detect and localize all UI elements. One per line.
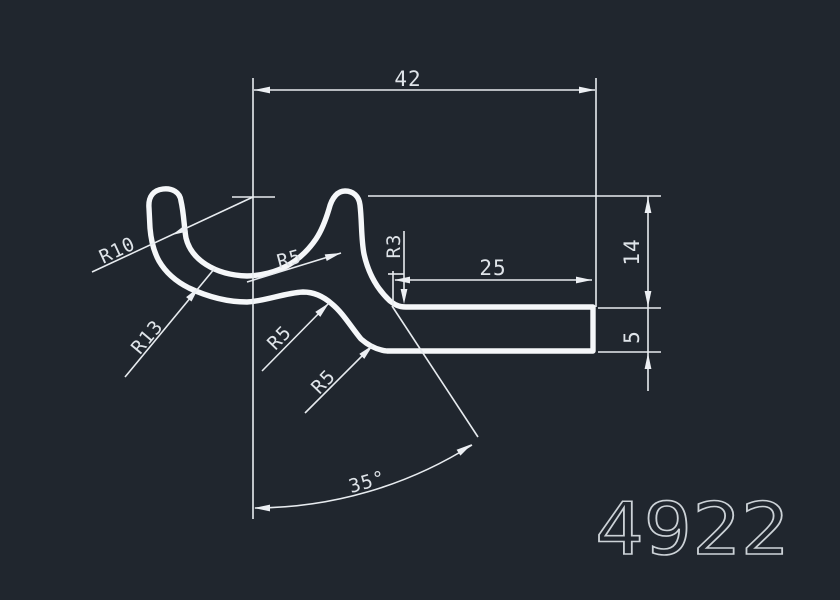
dimension-arrows (172, 87, 651, 512)
arrow-25-left (394, 277, 410, 284)
arrow-angle-left (254, 505, 270, 512)
dimension-lines (92, 78, 661, 519)
arrow-42-left (254, 87, 270, 94)
dim-label-top-width: 42 (394, 67, 421, 91)
r13-leader (125, 268, 215, 377)
arrow-14-bottom (645, 291, 652, 307)
radius-label-s-upper: R5 (263, 321, 296, 354)
arrow-r3 (401, 289, 408, 304)
radius-label-fillet: R3 (383, 234, 405, 259)
angle-ray (392, 306, 478, 437)
dim-label-bar-length: 25 (479, 256, 506, 280)
arrow-25-right (576, 277, 592, 284)
radius-label-upper-left: R10 (96, 233, 139, 269)
arrow-42-right (579, 87, 595, 94)
part-profile (149, 189, 593, 351)
arrow-angle-right (457, 444, 472, 456)
cad-canvas: 42 25 14 5 R3 R10 R13 R5 R5 R5 35° 4922 (0, 0, 840, 600)
dim-label-bar-thickness: 5 (620, 330, 644, 344)
arrow-5-bottom (645, 353, 652, 369)
arrow-r5-mid (325, 253, 341, 261)
radius-label-mid: R5 (275, 245, 305, 273)
part-number: 4922 (595, 487, 789, 571)
dim-label-right-height: 14 (620, 238, 644, 265)
radius-label-lower-left: R13 (127, 316, 168, 359)
arrow-14-top (645, 197, 652, 213)
radius-label-s-lower: R5 (307, 365, 340, 398)
angle-label: 35° (346, 467, 388, 498)
